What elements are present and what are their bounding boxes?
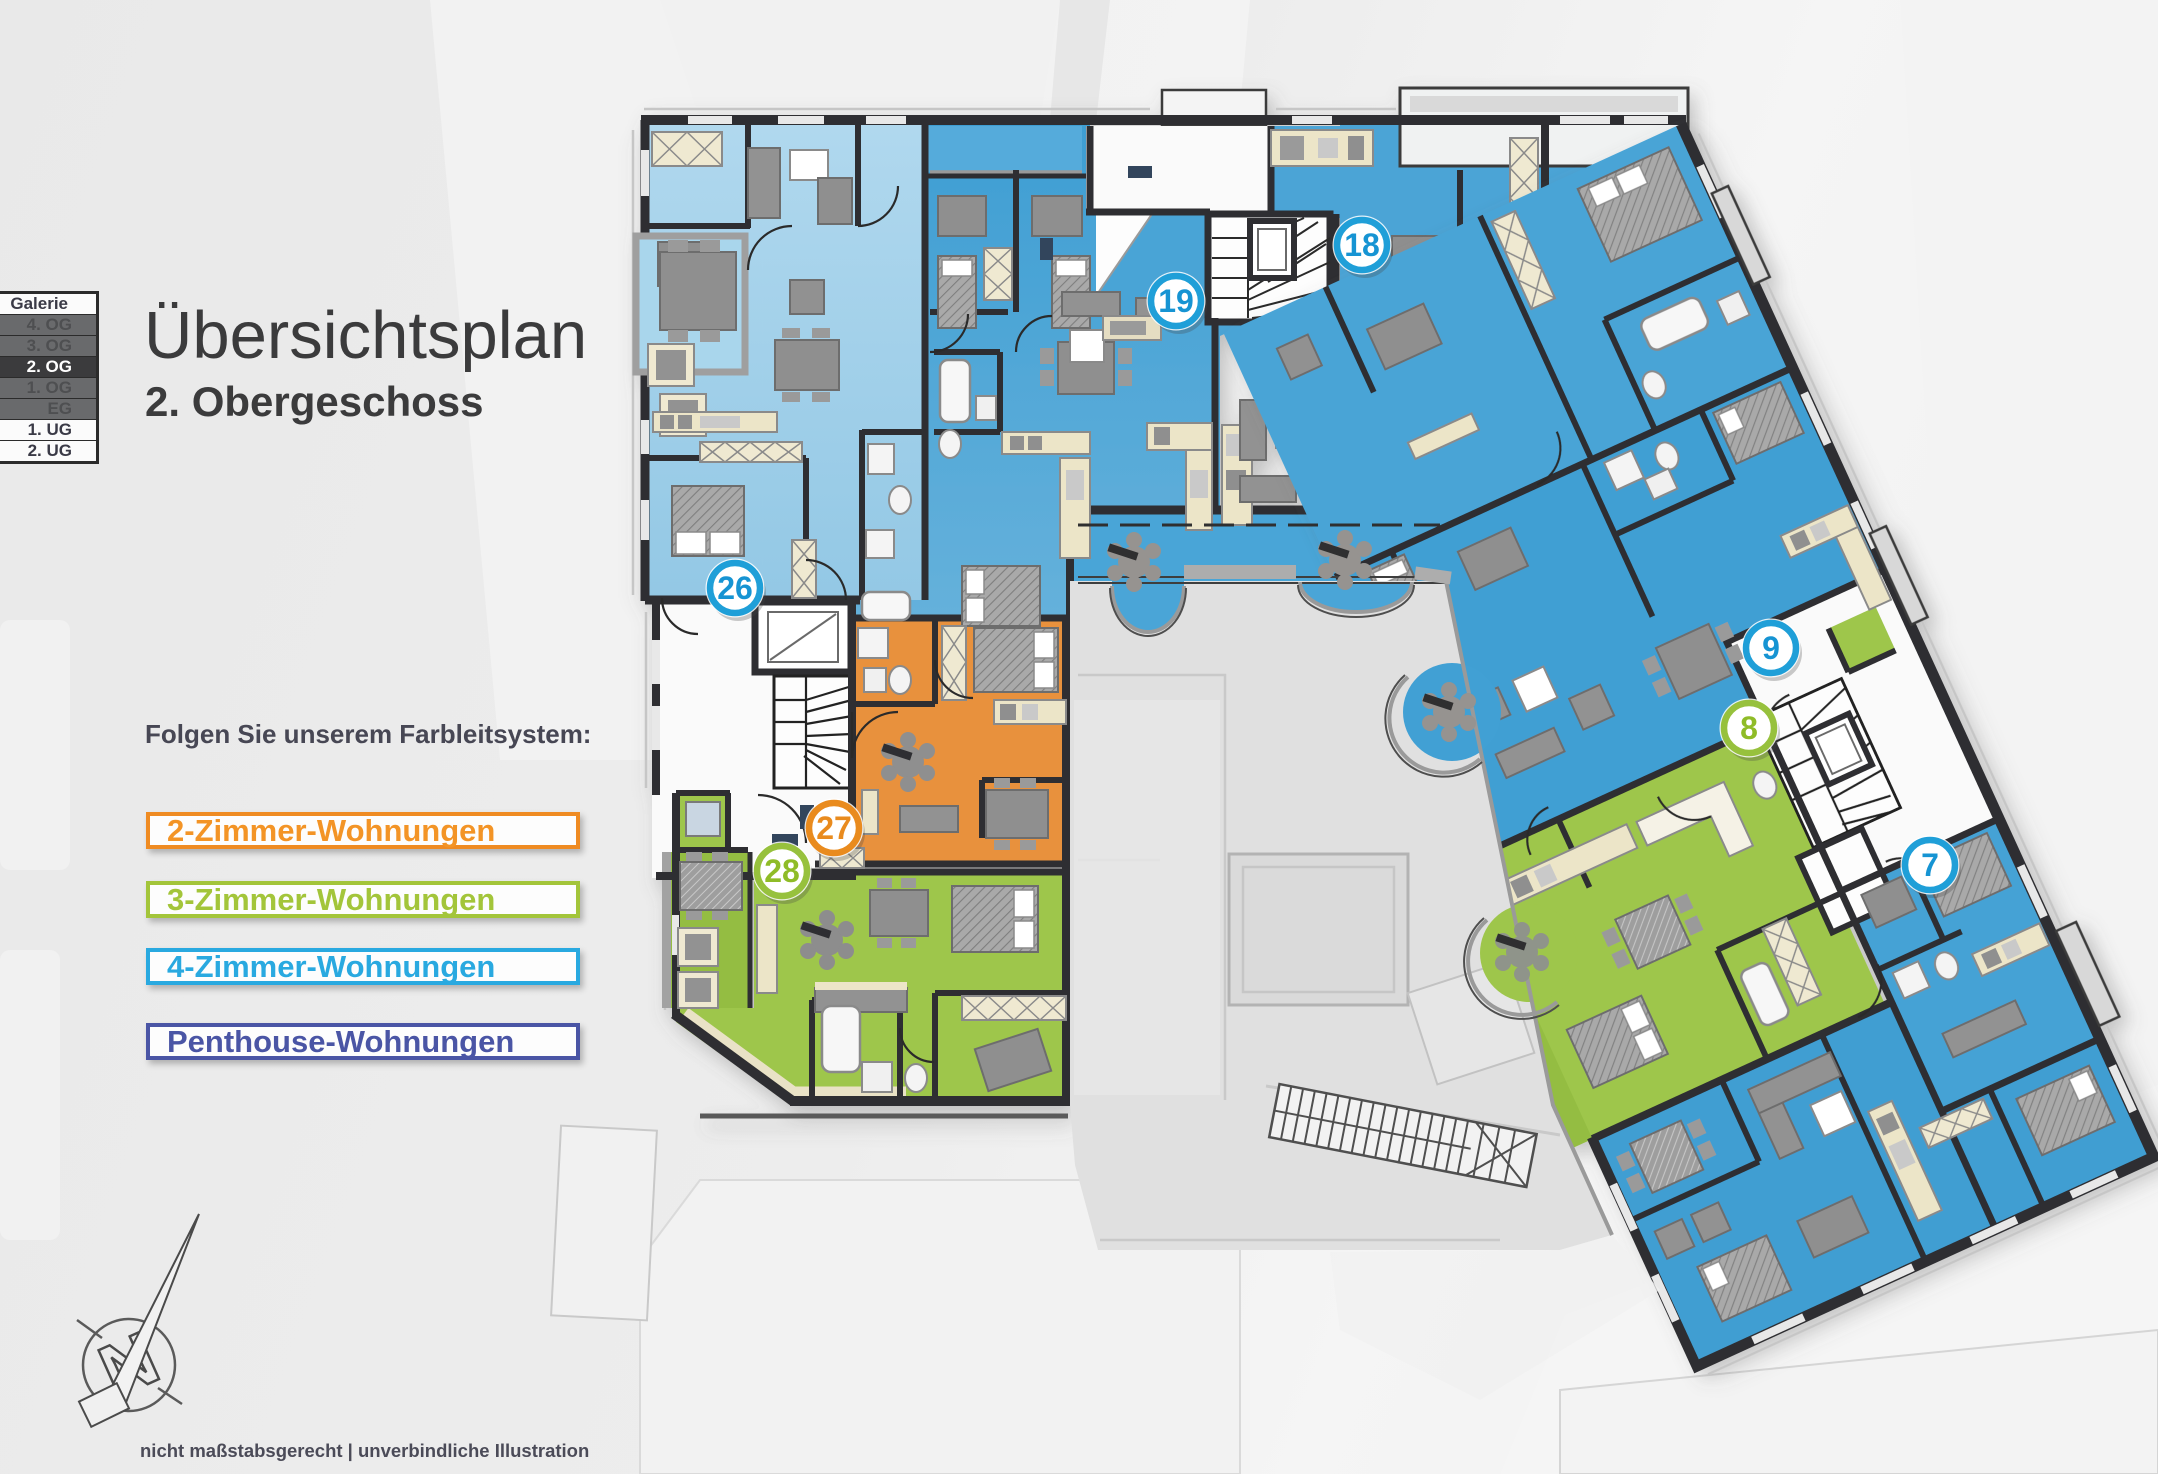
svg-text:27: 27 bbox=[816, 810, 852, 846]
svg-text:8: 8 bbox=[1740, 710, 1758, 746]
svg-text:19: 19 bbox=[1158, 283, 1194, 319]
svg-text:7: 7 bbox=[1921, 847, 1939, 883]
svg-text:28: 28 bbox=[764, 853, 800, 889]
svg-text:18: 18 bbox=[1344, 227, 1380, 263]
svg-text:9: 9 bbox=[1762, 630, 1780, 666]
svg-text:26: 26 bbox=[717, 570, 753, 606]
